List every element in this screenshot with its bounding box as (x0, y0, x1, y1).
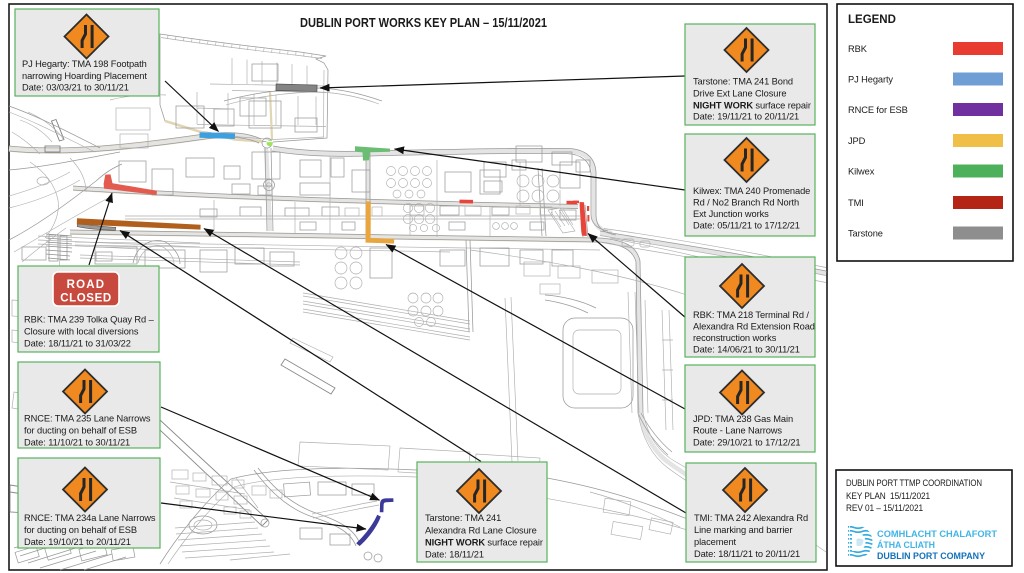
svg-text:REV 01 – 15/11/2021: REV 01 – 15/11/2021 (846, 503, 923, 513)
svg-text:Date: 19/10/21 to 20/11/21: Date: 19/10/21 to 20/11/21 (24, 537, 131, 547)
svg-text:JPD: TMA 238 Gas Main: JPD: TMA 238 Gas Main (693, 414, 793, 424)
svg-text:Tarstone: Tarstone (848, 229, 883, 239)
svg-text:RBK: TMA 239 Tolka Quay Rd –: RBK: TMA 239 Tolka Quay Rd – (24, 315, 155, 325)
svg-text:Line marking and barrier: Line marking and barrier (694, 525, 792, 535)
svg-text:LEGEND: LEGEND (848, 14, 896, 26)
svg-text:COMHLACHT CHALAFORT: COMHLACHT CHALAFORT (877, 529, 997, 540)
svg-text:Tarstone: TMA 241: Tarstone: TMA 241 (425, 513, 501, 523)
svg-text:CLOSED: CLOSED (60, 293, 112, 305)
svg-text:Kilwex: TMA 240 Promenade: Kilwex: TMA 240 Promenade (693, 186, 810, 196)
svg-text:Alexandra Rd Extension Road: Alexandra Rd Extension Road (693, 322, 815, 332)
svg-text:TMI: TMA 242 Alexandra Rd: TMI: TMA 242 Alexandra Rd (694, 513, 808, 523)
svg-text:NIGHT WORK surface repair: NIGHT WORK surface repair (693, 101, 811, 111)
svg-text:DUBLIN PORT WORKS KEY PLAN – 1: DUBLIN PORT WORKS KEY PLAN – 15/11/2021 (300, 16, 547, 30)
svg-text:Date: 29/10/21 to 17/12/21: Date: 29/10/21 to 17/12/21 (693, 438, 801, 448)
svg-text:RBK: RBK (848, 44, 868, 54)
svg-text:Date: 18/11/21 to 20/11/21: Date: 18/11/21 to 20/11/21 (694, 549, 800, 559)
svg-text:Date: 19/11/21 to 20/11/21: Date: 19/11/21 to 20/11/21 (693, 112, 799, 122)
svg-text:Date: 14/06/21 to 30/11/21: Date: 14/06/21 to 30/11/21 (693, 345, 800, 355)
svg-text:PJ Hegarty: PJ Hegarty (848, 75, 893, 85)
svg-text:DUBLIN PORT COMPANY: DUBLIN PORT COMPANY (877, 551, 986, 562)
svg-text:RNCE for ESB: RNCE for ESB (848, 105, 908, 115)
svg-text:TMI: TMI (848, 198, 864, 208)
svg-text:DUBLIN PORT TTMP COORDINATION: DUBLIN PORT TTMP COORDINATION (846, 478, 982, 488)
svg-text:Closure with local diversions: Closure with local diversions (24, 327, 139, 337)
svg-text:ÁTHA CLIATH: ÁTHA CLIATH (877, 539, 935, 551)
svg-text:Date: 03/03/21 to 30/11/21: Date: 03/03/21 to 30/11/21 (22, 83, 129, 93)
svg-text:PJ Hegarty: TMA 198 Footpath: PJ Hegarty: TMA 198 Footpath (22, 59, 147, 69)
svg-text:RNCE: TMA 234a Lane Narrows: RNCE: TMA 234a Lane Narrows (24, 513, 156, 523)
svg-text:Date: 18/11/21 to 31/03/22: Date: 18/11/21 to 31/03/22 (24, 339, 131, 349)
svg-text:RNCE: TMA 235 Lane Narrows: RNCE: TMA 235 Lane Narrows (24, 414, 151, 424)
svg-text:ROAD: ROAD (67, 279, 106, 291)
svg-text:narrowing Hoarding Placement: narrowing Hoarding Placement (22, 71, 147, 81)
svg-text:reconstruction works: reconstruction works (693, 333, 777, 343)
svg-text:Tarstone: TMA 241 Bond: Tarstone: TMA 241 Bond (693, 77, 793, 87)
svg-text:Date: 18/11/21: Date: 18/11/21 (425, 550, 484, 560)
svg-text:Date: 11/10/21 to 30/11/21: Date: 11/10/21 to 30/11/21 (24, 438, 130, 448)
svg-text:for ducting on behalf of ESB: for ducting on behalf of ESB (24, 426, 137, 436)
svg-text:RBK: TMA 218 Terminal Rd /: RBK: TMA 218 Terminal Rd / (693, 310, 809, 320)
svg-text:placement: placement (694, 537, 737, 547)
svg-text:for ducting on behalf of ESB: for ducting on behalf of ESB (24, 525, 137, 535)
svg-text:Ext Junction works: Ext Junction works (693, 209, 769, 219)
svg-text:Kilwex: Kilwex (848, 167, 875, 177)
svg-text:NIGHT WORK surface repair: NIGHT WORK surface repair (425, 538, 543, 548)
svg-text:Route - Lane Narrows: Route - Lane Narrows (693, 426, 782, 436)
svg-text:JPD: JPD (848, 136, 866, 146)
svg-text:Date: 05/11/21 to 17/12/21: Date: 05/11/21 to 17/12/21 (693, 221, 800, 231)
svg-text:KEY PLAN 15/11/2021: KEY PLAN 15/11/2021 (846, 491, 930, 501)
svg-text:Drive Ext Lane Closure: Drive Ext Lane Closure (693, 89, 786, 99)
svg-text:Rd / No2 Branch Rd North: Rd / No2 Branch Rd North (693, 198, 799, 208)
svg-text:Alexandra Rd Lane Closure: Alexandra Rd Lane Closure (425, 526, 537, 536)
